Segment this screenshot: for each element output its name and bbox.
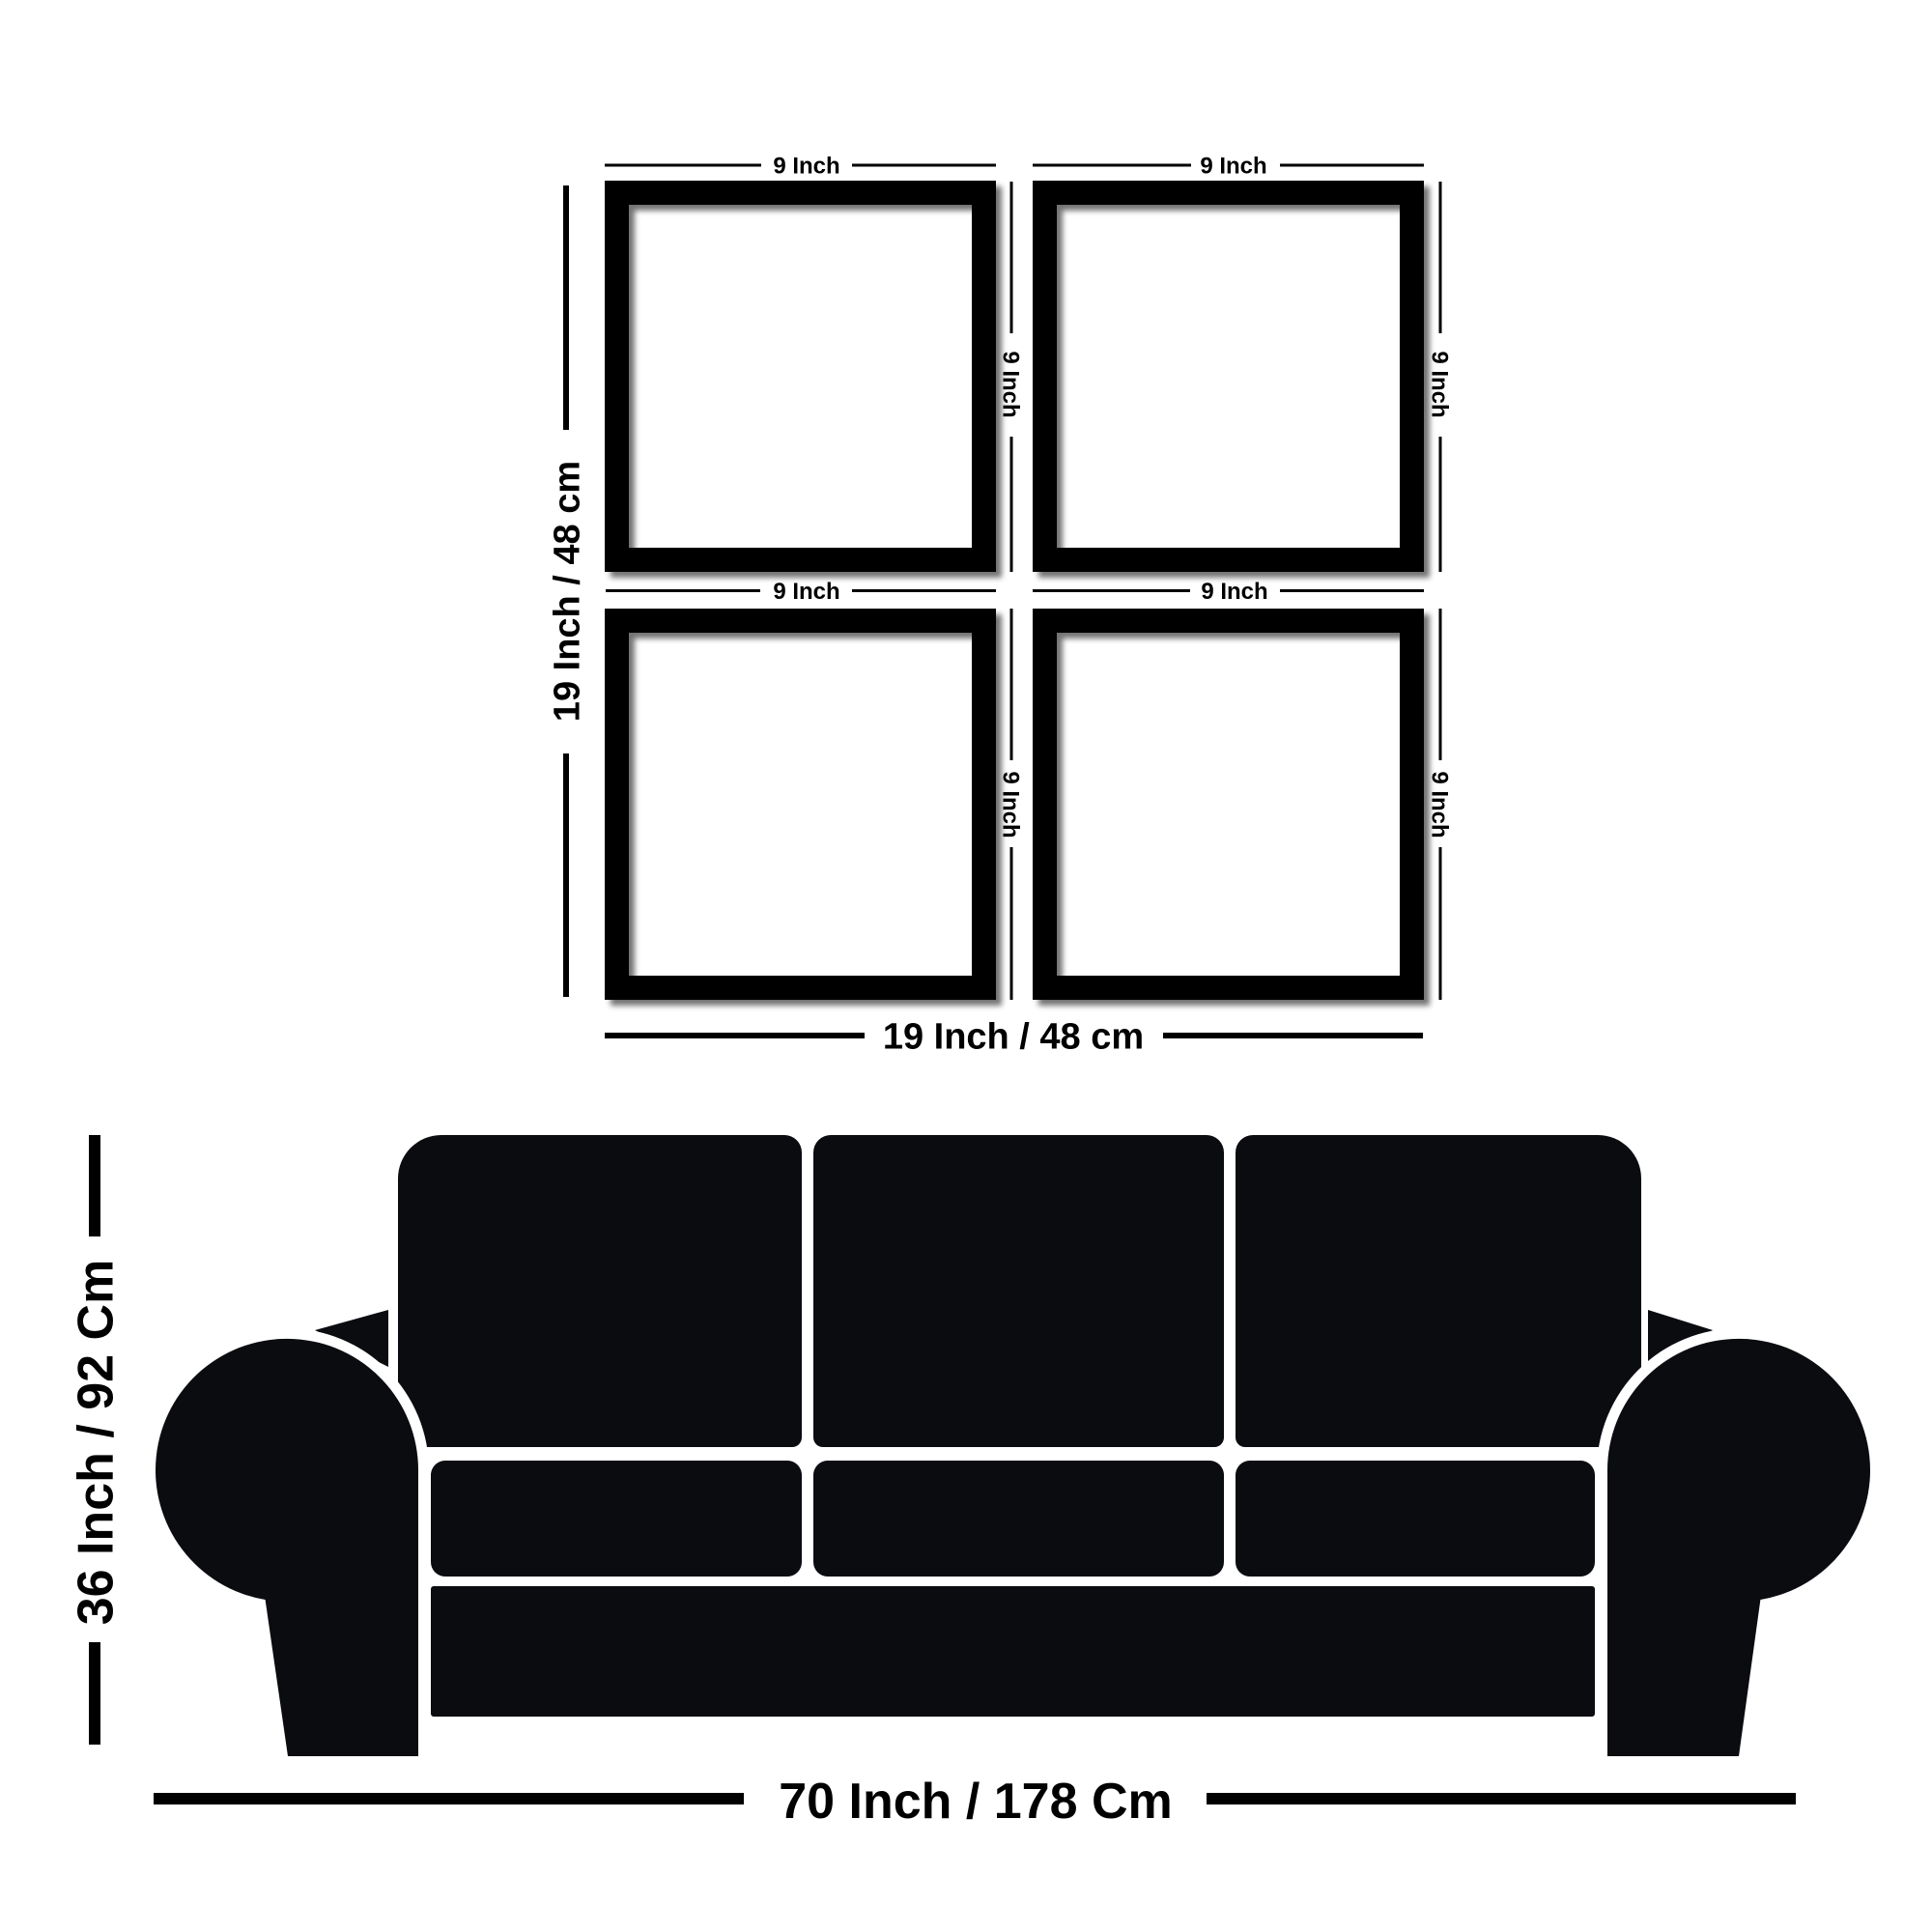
svg-text:9 Inch: 9 Inch	[998, 771, 1024, 838]
svg-text:19 Inch / 48 cm: 19 Inch / 48 cm	[883, 1017, 1144, 1058]
svg-text:9 Inch: 9 Inch	[1201, 579, 1267, 605]
svg-text:9 Inch: 9 Inch	[773, 579, 839, 605]
svg-text:9 Inch: 9 Inch	[1427, 351, 1453, 417]
svg-text:9 Inch: 9 Inch	[773, 154, 839, 180]
svg-text:9 Inch: 9 Inch	[1200, 154, 1266, 180]
svg-text:9 Inch: 9 Inch	[1427, 771, 1453, 838]
svg-text:19 Inch / 48 cm: 19 Inch / 48 cm	[548, 461, 588, 722]
svg-text:9 Inch: 9 Inch	[998, 351, 1024, 417]
svg-text:36 Inch / 92 Cm: 36 Inch / 92 Cm	[69, 1260, 125, 1626]
svg-text:70 Inch / 178 Cm: 70 Inch / 178 Cm	[779, 1774, 1173, 1830]
